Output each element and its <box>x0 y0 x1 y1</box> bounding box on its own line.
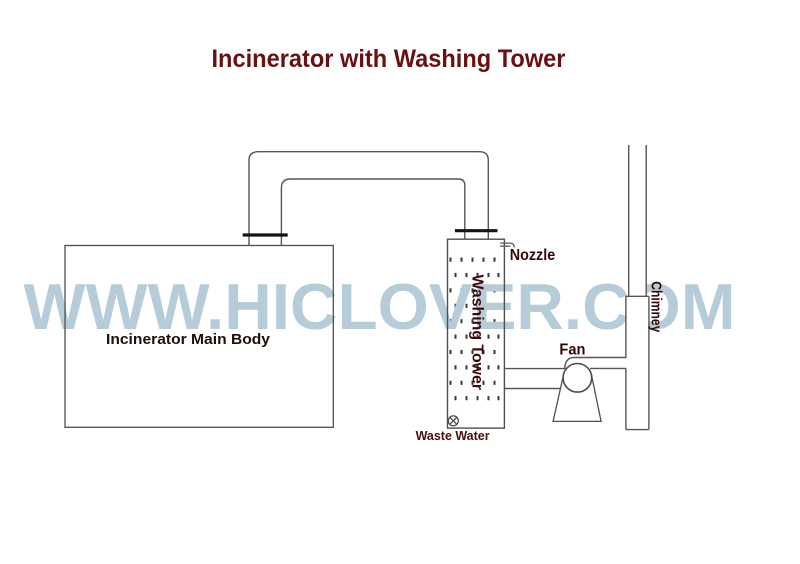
svg-text:Chimney: Chimney <box>648 281 664 332</box>
svg-text:Fan: Fan <box>559 341 585 358</box>
svg-text:Waste Water: Waste Water <box>416 428 490 443</box>
svg-text:Incinerator Main Body: Incinerator Main Body <box>106 331 271 348</box>
svg-text:Washing Tower: Washing Tower <box>469 275 486 391</box>
svg-text:Incinerator with Washing Tower: Incinerator with Washing Tower <box>212 45 566 73</box>
svg-text:Nozzle: Nozzle <box>510 247 556 264</box>
